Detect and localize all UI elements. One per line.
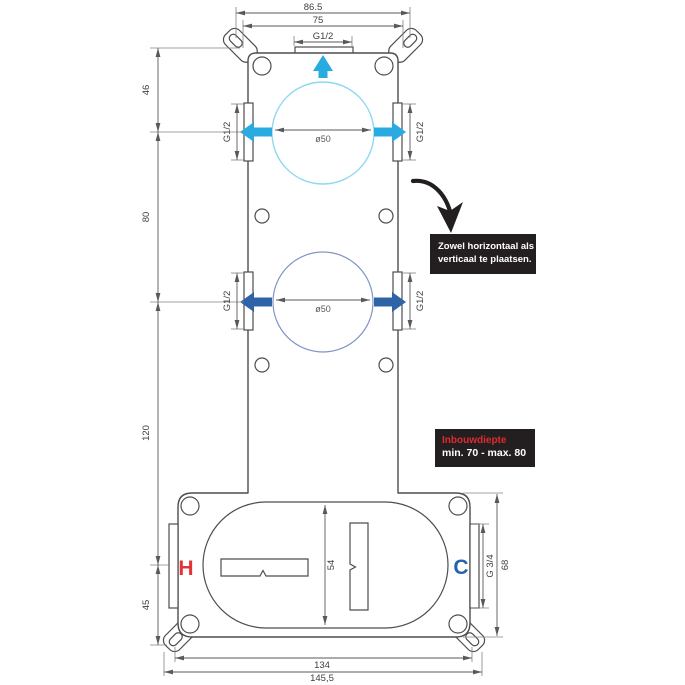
dim-box-thread: G 3/4 [485,554,496,577]
depth-note-box: Inbouwdiepte min. 70 - max. 80 [435,429,535,467]
dim-thread-lower-right: G1/2 [415,291,426,312]
dim-left-80: 80 [141,212,152,223]
placement-note-box: Zowel horizontaal als verticaal te plaat… [430,234,536,274]
placement-note-line1: Zowel horizontaal als [438,241,536,254]
cold-port-label: C [453,556,468,579]
curved-arrow-icon [413,181,463,233]
dim-thread-upper-left: G1/2 [222,122,233,143]
hot-port-label: H [178,557,193,580]
drawing-canvas: 86.5 75 G1/2 46 80 120 45 G1/2 G1/2 G1/2… [0,0,685,685]
dim-upper-circle-dia: ø50 [315,134,331,144]
dim-bottom-inner: 134 [314,660,330,671]
dim-top-outer: 86.5 [304,2,323,13]
dim-left-45: 45 [141,600,152,611]
depth-note-label: Inbouwdiepte [442,434,535,447]
horizontal-slot [221,559,308,576]
depth-note-range: min. 70 - max. 80 [442,447,535,460]
technical-drawing-page: 86.5 75 G1/2 46 80 120 45 G1/2 G1/2 G1/2… [0,0,685,685]
dim-top-inner: 75 [313,15,324,26]
dim-box-inner-54: 54 [326,560,337,571]
dim-left-46: 46 [141,85,152,96]
placement-note-line2: verticaal te plaatsen. [438,254,536,267]
dim-thread-lower-left: G1/2 [222,291,233,312]
dim-box-height-68: 68 [500,560,511,571]
dim-thread-upper-right: G1/2 [415,122,426,143]
dim-top-thread: G1/2 [313,31,334,42]
dim-bottom-outer: 145,5 [310,673,334,684]
dim-lower-circle-dia: ø50 [315,304,331,314]
dim-left-120: 120 [141,425,152,441]
